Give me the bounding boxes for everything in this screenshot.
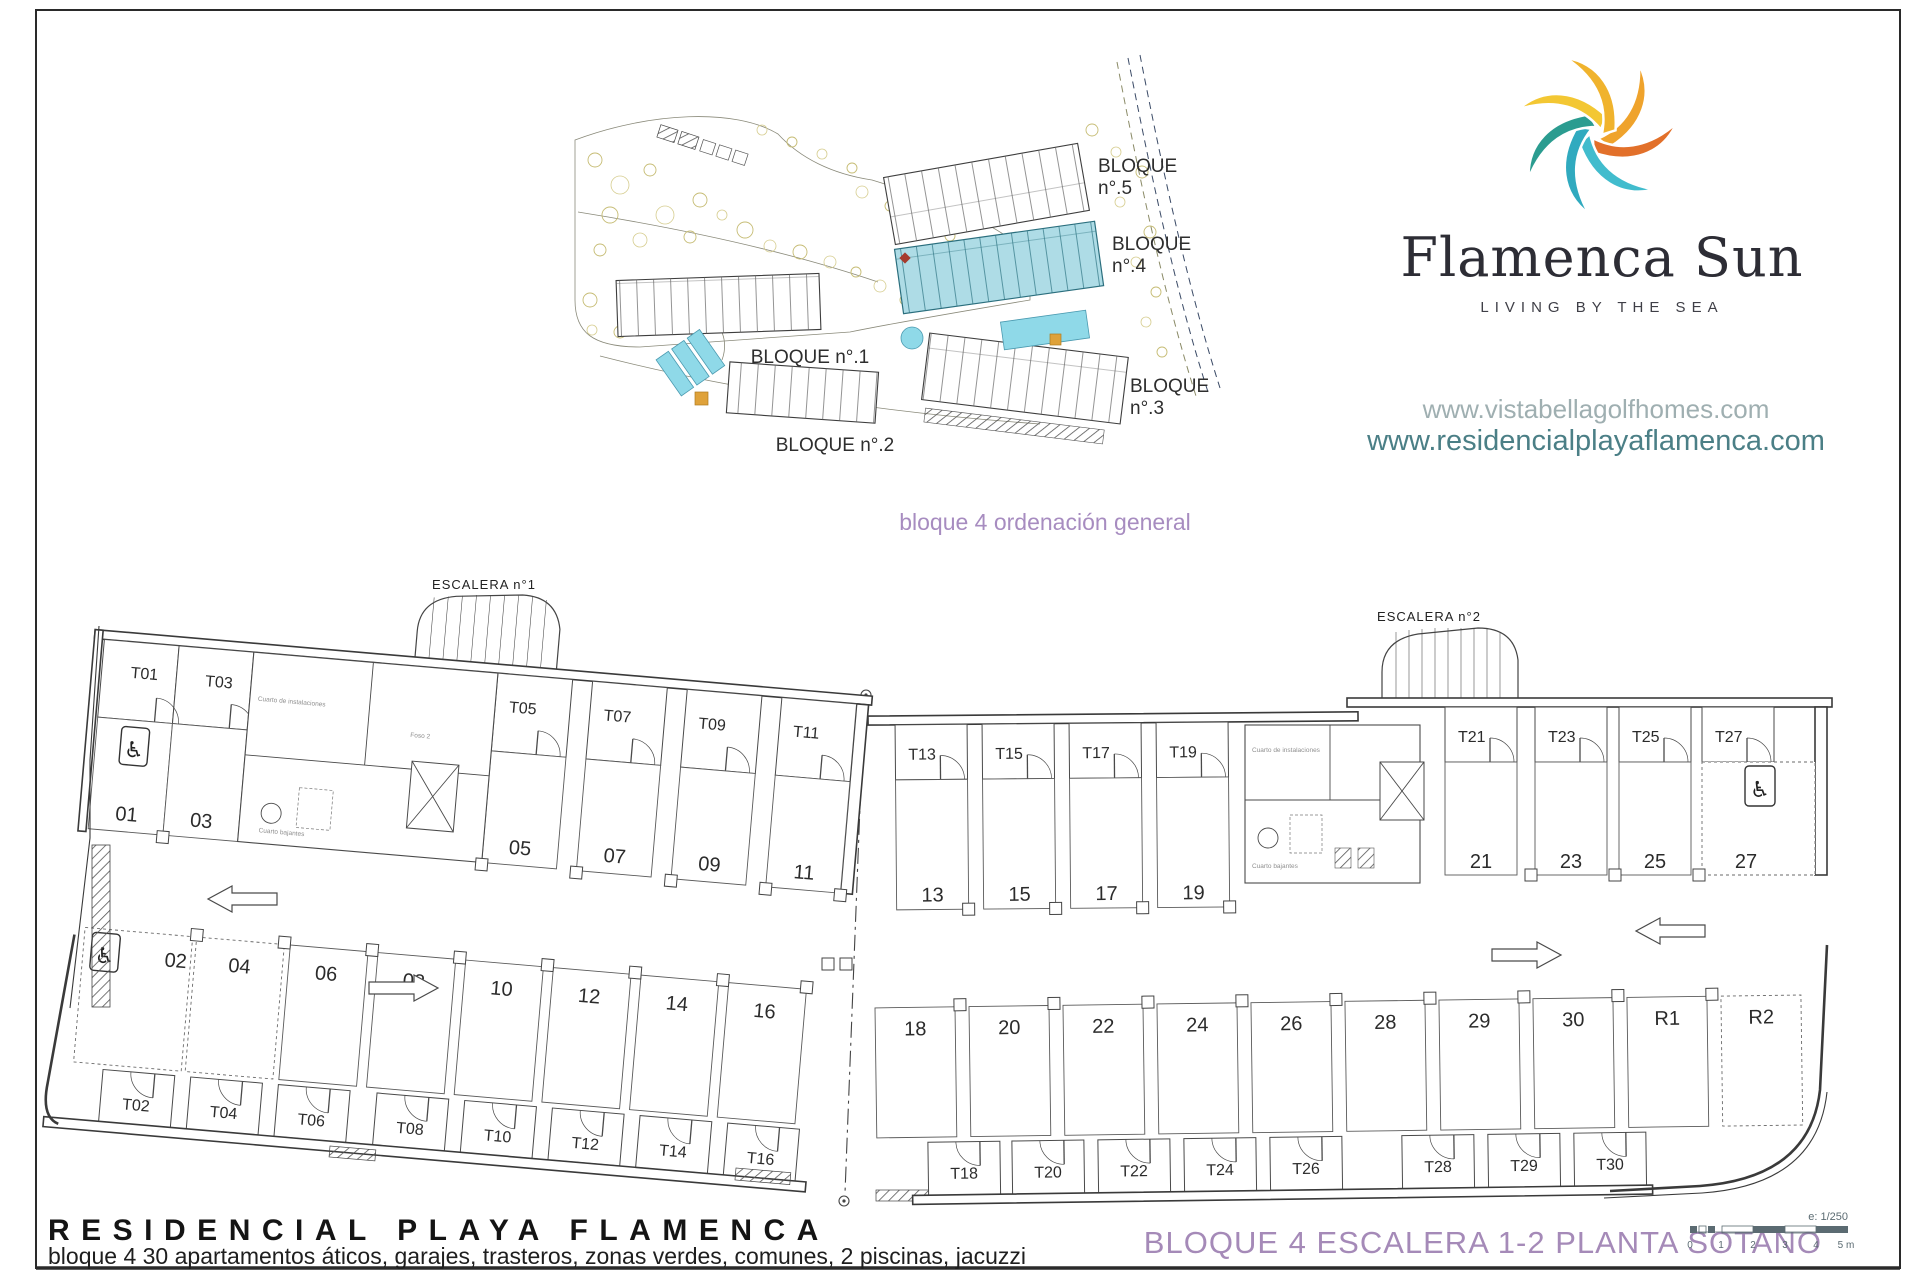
parking-label: 05 — [508, 837, 532, 861]
storage-label: T19 — [1169, 744, 1197, 761]
pillar — [1424, 992, 1436, 1004]
stair1-label: ESCALERA n°1 — [432, 577, 536, 592]
parking-label: 01 — [114, 803, 138, 827]
label-bloque4: BLOQUE — [1112, 234, 1191, 255]
pillar — [1236, 995, 1248, 1007]
wheelchair-icon: ♿ — [1750, 778, 1770, 803]
scale-tick: 5 m — [1838, 1240, 1855, 1251]
logo: Flamenca Sun LIVING BY THE SEA www.vista… — [1366, 57, 1825, 457]
storage-label: T09 — [698, 715, 727, 734]
storage-label: T06 — [297, 1111, 326, 1130]
stair2 — [1382, 628, 1518, 706]
pillar — [1048, 997, 1060, 1009]
pillar — [759, 882, 772, 895]
pillar — [822, 958, 834, 970]
parking-label: 03 — [189, 809, 213, 833]
pillar — [570, 866, 583, 879]
pillar — [366, 944, 379, 957]
parking-label: R1 — [1654, 1008, 1680, 1030]
brand-tagline: LIVING BY THE SEA — [1480, 299, 1723, 316]
storage-label: T24 — [1206, 1162, 1234, 1179]
building-bloque2 — [726, 362, 878, 423]
pillar — [475, 858, 488, 871]
boundary-line — [1140, 55, 1220, 388]
direction-arrow-left — [208, 886, 277, 912]
outer-wall-corner — [44, 933, 75, 1124]
label-bloque1: BLOQUE n°.1 — [751, 347, 869, 368]
pillar — [963, 903, 975, 915]
storage-label: T16 — [746, 1150, 775, 1169]
parking-label: 14 — [665, 992, 689, 1016]
parking-label: 22 — [1092, 1016, 1115, 1038]
boundary-line — [1128, 58, 1208, 392]
storage-label: T10 — [483, 1127, 512, 1146]
left-wing-bottom-band: 02 04 06 08 10 12 14 16 ♿ T02 T04 T06 T0… — [43, 917, 823, 1192]
amenity-marker — [695, 392, 708, 405]
amenity-marker — [1050, 334, 1061, 345]
brand-name: Flamenca Sun — [1400, 226, 1803, 289]
parking-label: 19 — [1182, 882, 1204, 904]
floor-plan: ESCALERA n°1 ESCALERA n°2 T01 T03 T05 T0… — [43, 559, 1832, 1206]
pillar — [453, 951, 466, 964]
parking-label: 28 — [1374, 1012, 1397, 1034]
storage-label: T12 — [571, 1135, 600, 1154]
utility-label: Cuarto bajantes — [1252, 863, 1299, 870]
pillar — [1609, 869, 1621, 881]
storage-label: T22 — [1120, 1163, 1148, 1180]
storage-label: T11 — [792, 724, 820, 743]
storage-label: T28 — [1424, 1159, 1452, 1176]
parking-label: 17 — [1095, 883, 1117, 905]
outer-wall — [1347, 698, 1832, 707]
storage-label: T27 — [1715, 729, 1743, 746]
road — [578, 212, 878, 282]
pinwheel-icon — [1518, 57, 1677, 214]
pillar — [834, 889, 847, 902]
plan-sheet: BLOQUE n°.5 BLOQUE n°.4 BLOQUE n°.3 BLOQ… — [0, 0, 1920, 1280]
parking-label: 25 — [1644, 851, 1666, 873]
label-bloque4-n: n°.4 — [1112, 256, 1146, 277]
label-bloque2: BLOQUE n°.2 — [776, 435, 894, 456]
website-link-2: www.residencialplayaflamenca.com — [1366, 425, 1825, 457]
parking-label: R2 — [1748, 1006, 1774, 1028]
label-bloque3-n: n°.3 — [1130, 398, 1164, 419]
pillar — [954, 999, 966, 1011]
pillar — [664, 874, 677, 887]
site-plan: BLOQUE n°.5 BLOQUE n°.4 BLOQUE n°.3 BLOQ… — [575, 55, 1220, 535]
storage-label: T14 — [658, 1142, 687, 1161]
parking-label: 10 — [489, 977, 513, 1001]
wheelchair-icon: ♿ — [123, 738, 145, 765]
label-bloque3: BLOQUE — [1130, 376, 1209, 397]
pillar — [1693, 869, 1705, 881]
pillar — [190, 929, 203, 942]
parking-label: 11 — [793, 861, 816, 885]
storage-label: T03 — [204, 673, 233, 692]
storage-label: T18 — [950, 1166, 978, 1183]
pillar — [1142, 996, 1154, 1008]
project-subtitle: bloque 4 30 apartamentos áticos, garajes… — [48, 1243, 1026, 1269]
direction-arrow-right — [1492, 942, 1561, 968]
pillar — [1137, 902, 1149, 914]
right-wing-bottom-band: 18 20 22 24 26 28 29 30 R1 R2 T18 T20 T2… — [875, 987, 1804, 1205]
parking-label: 16 — [752, 1000, 776, 1024]
park-structures — [657, 125, 749, 166]
storage-label: T01 — [130, 665, 159, 684]
parking-label: 21 — [1470, 851, 1492, 873]
scale-note: e: 1/250 — [1808, 1211, 1848, 1223]
pillar — [1525, 869, 1537, 881]
storage-label: T02 — [121, 1096, 150, 1115]
drawing: BLOQUE n°.5 BLOQUE n°.4 BLOQUE n°.3 BLOQ… — [0, 0, 1920, 1280]
parking-label: 24 — [1186, 1014, 1209, 1036]
label-bloque5-n: n°.5 — [1098, 178, 1132, 199]
storage-label: T08 — [395, 1120, 424, 1139]
parking-label: 09 — [697, 853, 721, 877]
scale-tick: 3 — [1782, 1240, 1788, 1251]
stair2-label: ESCALERA n°2 — [1377, 609, 1481, 624]
storage-label: T29 — [1510, 1158, 1538, 1175]
utility-label: Cuarto de instalaciones — [1252, 747, 1321, 754]
scale-tick: 1 — [1718, 1240, 1724, 1251]
label-bloque5: BLOQUE — [1098, 156, 1177, 177]
pool-lanes — [656, 329, 725, 395]
pillar — [1612, 989, 1624, 1001]
parking-label: 18 — [904, 1018, 927, 1040]
match-marker-bottom-dot — [842, 1199, 845, 1202]
site-plan-caption: bloque 4 ordenación general — [899, 509, 1191, 535]
parking-label: 30 — [1562, 1009, 1585, 1031]
pool-main — [1000, 310, 1089, 350]
parking-label: 06 — [314, 962, 338, 986]
storage-label: T25 — [1632, 729, 1660, 746]
building-bloque1 — [616, 273, 821, 336]
fixture — [1358, 848, 1374, 868]
pillar — [1518, 991, 1530, 1003]
footer: RESIDENCIAL PLAYA FLAMENCA bloque 4 30 a… — [48, 1211, 1854, 1269]
pillar — [278, 936, 291, 949]
parking-label: 07 — [603, 845, 627, 869]
pool-round — [901, 327, 923, 349]
website-link-1: www.vistabellagolfhomes.com — [1422, 394, 1770, 424]
pillar — [1224, 901, 1236, 913]
parking-label: 26 — [1280, 1013, 1303, 1035]
storage-label: T23 — [1548, 729, 1576, 746]
storage-label: T26 — [1292, 1161, 1320, 1178]
scale-tick: 4 — [1813, 1240, 1819, 1251]
storage-label: T21 — [1458, 729, 1486, 746]
storage-label: T07 — [603, 707, 632, 726]
entry-ramp — [92, 845, 110, 1007]
parking-label: 29 — [1468, 1010, 1491, 1032]
building-bloque3 — [919, 333, 1128, 446]
pillar — [629, 966, 642, 979]
storage-label: T15 — [995, 746, 1023, 763]
parking-label: 20 — [998, 1017, 1021, 1039]
pillar — [1706, 988, 1718, 1000]
storage-label: T30 — [1596, 1156, 1624, 1173]
pillar — [156, 831, 169, 844]
storage-label: T05 — [508, 699, 537, 718]
outer-wall — [1815, 707, 1827, 875]
scale-tick: 2 — [1750, 1240, 1756, 1251]
parking-label: 02 — [164, 949, 188, 973]
parking-label: 12 — [577, 985, 601, 1009]
direction-arrow-left — [1636, 918, 1705, 944]
storage-label: T13 — [908, 747, 936, 764]
boundary-line — [1117, 62, 1196, 396]
parking-label: 04 — [227, 955, 251, 979]
storage-label: T17 — [1082, 745, 1110, 762]
parking-label: 15 — [1008, 884, 1030, 906]
parking-label: 13 — [921, 884, 943, 906]
storage-label: T20 — [1034, 1164, 1062, 1181]
pillar — [716, 974, 729, 987]
left-wing-top-band: T01 T03 T05 T07 T09 T11 01 03 05 07 09 1… — [78, 559, 879, 903]
parking-label: 27 — [1735, 851, 1757, 873]
fixture — [1335, 848, 1351, 868]
scale-tick: 0 — [1687, 1240, 1693, 1251]
pillar — [800, 981, 813, 994]
storage-label: T04 — [209, 1104, 238, 1123]
parking-label: 23 — [1560, 851, 1582, 873]
pillar — [1330, 993, 1342, 1005]
pillar — [840, 958, 852, 970]
pillar — [541, 959, 554, 972]
pillar — [1050, 902, 1062, 914]
